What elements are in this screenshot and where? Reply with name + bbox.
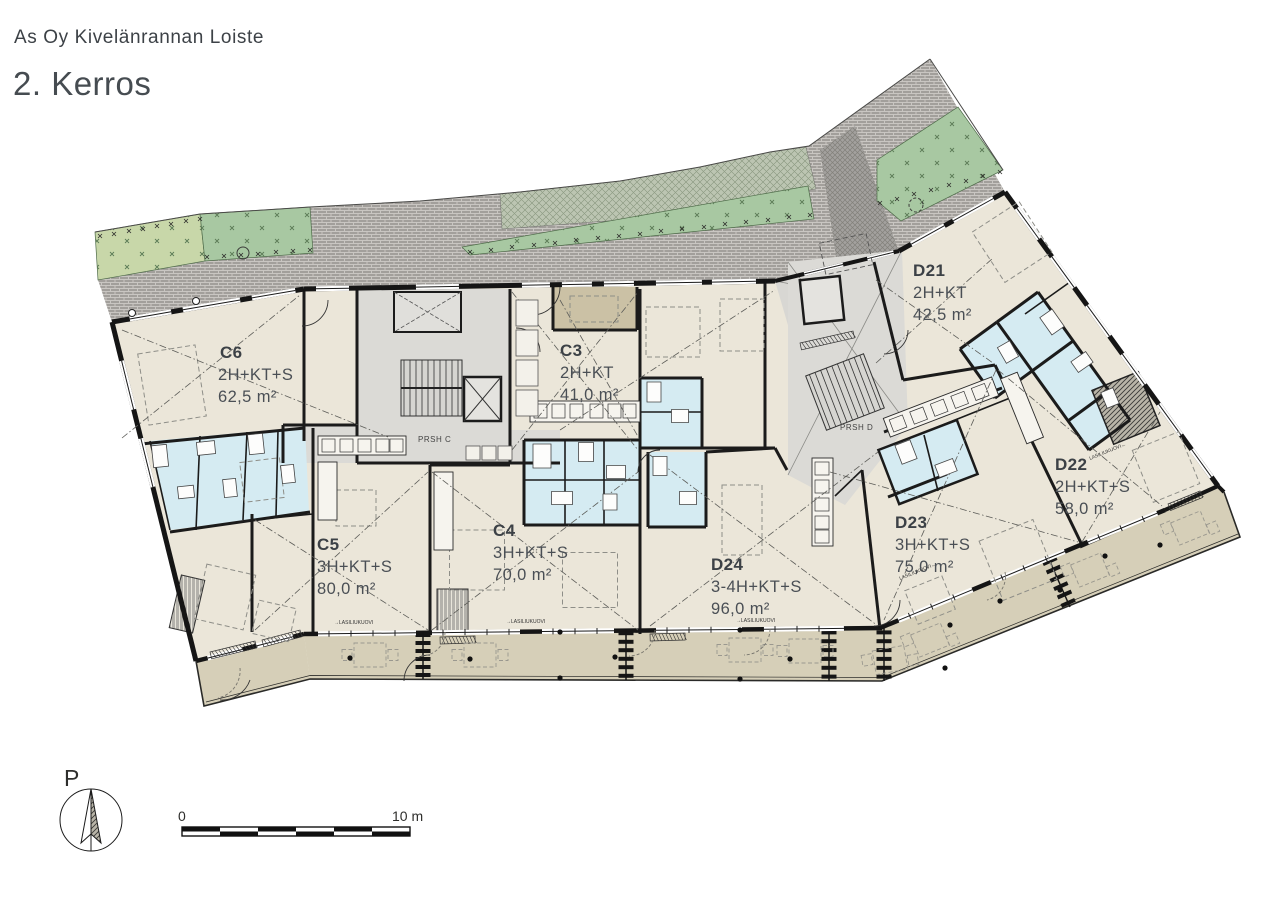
svg-text:C6: C6 (220, 343, 243, 362)
svg-text:C3: C3 (560, 341, 583, 360)
svg-text:58,0 m²: 58,0 m² (1055, 500, 1114, 518)
svg-text:42,5 m²: 42,5 m² (913, 306, 972, 324)
svg-text:→LASILIUKUOVI: →LASILIUKUOVI (736, 618, 775, 624)
svg-text:3H+KT+S: 3H+KT+S (317, 558, 392, 576)
svg-text:41,0 m²: 41,0 m² (560, 386, 619, 404)
svg-text:2H+KT: 2H+KT (913, 284, 967, 302)
svg-text:As Oy Kivelänrannan Loiste: As Oy Kivelänrannan Loiste (14, 27, 264, 48)
svg-text:D23: D23 (895, 513, 927, 532)
svg-text:C5: C5 (317, 535, 340, 554)
svg-text:3H+KT+S: 3H+KT+S (493, 544, 568, 562)
svg-text:D24: D24 (711, 555, 744, 574)
svg-text:D21: D21 (913, 261, 945, 280)
svg-text:PRSH D: PRSH D (840, 423, 873, 432)
svg-text:2H+KT+S: 2H+KT+S (218, 366, 293, 384)
svg-text:2H+KT: 2H+KT (560, 364, 614, 382)
svg-text:3-4H+KT+S: 3-4H+KT+S (711, 578, 802, 596)
svg-text:0: 0 (178, 808, 186, 824)
svg-text:C4: C4 (493, 521, 516, 540)
svg-text:P: P (64, 765, 79, 791)
svg-text:96,0 m²: 96,0 m² (711, 600, 770, 618)
svg-text:PRSH C: PRSH C (418, 435, 451, 444)
svg-text:62,5 m²: 62,5 m² (218, 388, 277, 406)
svg-text:10 m: 10 m (392, 808, 423, 824)
svg-text:2. Kerros: 2. Kerros (13, 65, 151, 102)
svg-text:80,0 m²: 80,0 m² (317, 580, 376, 598)
svg-text:D22: D22 (1055, 455, 1087, 474)
svg-text:→LASILIUKUOVI: →LASILIUKUOVI (506, 619, 545, 625)
svg-text:70,0 m²: 70,0 m² (493, 566, 552, 584)
svg-text:2H+KT+S: 2H+KT+S (1055, 478, 1130, 496)
svg-text:→LASILIUKUOVI: →LASILIUKUOVI (334, 620, 373, 626)
svg-text:3H+KT+S: 3H+KT+S (895, 536, 970, 554)
